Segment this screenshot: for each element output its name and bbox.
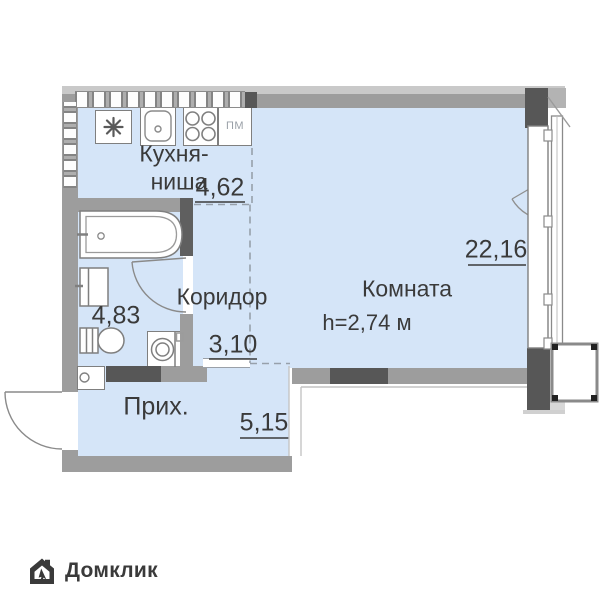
- domclick-logo: Домклик: [28, 556, 158, 586]
- kitchen-label-line1: Кухня-: [139, 141, 208, 168]
- balcony-box: [552, 344, 597, 401]
- bathtub: [77, 211, 182, 258]
- kitchen-sink-basin: [145, 111, 171, 141]
- window: [528, 97, 570, 349]
- domclick-house-icon: [28, 556, 58, 586]
- kitchen-area: 4,62: [196, 174, 245, 203]
- adjacent-outline-lines: [289, 366, 527, 456]
- bathroom-sink: [75, 268, 108, 306]
- room-area: 22,16: [465, 236, 528, 265]
- room-label: Комната: [362, 276, 452, 303]
- plan-linework: [0, 0, 600, 600]
- entrance-door-arc: [5, 392, 62, 449]
- toilet: [80, 328, 124, 353]
- hallway-label: Прих.: [123, 393, 188, 422]
- utility-box-circle: [80, 373, 89, 382]
- ceiling-height-label: h=2,74 м: [322, 310, 411, 336]
- domclick-logo-text: Домклик: [65, 559, 158, 583]
- bathroom-area: 4,83: [92, 302, 141, 331]
- corridor-area: 3,10: [209, 331, 258, 360]
- washing-machine-drum: [152, 332, 184, 367]
- corridor-label: Коридор: [177, 284, 268, 311]
- stove-burners-icon: [186, 112, 215, 141]
- hallway-area: 5,15: [240, 409, 289, 438]
- floor-plan: ПМ: [0, 0, 600, 600]
- fridge-icon: [105, 118, 123, 136]
